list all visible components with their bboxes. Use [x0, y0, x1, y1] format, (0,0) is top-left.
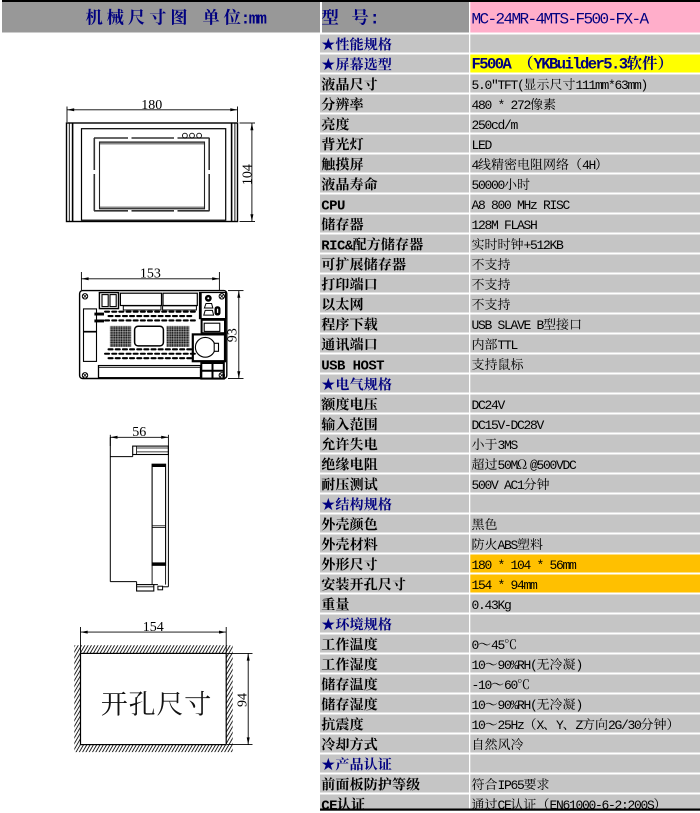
svg-text:TTL: TTL [498, 338, 518, 353]
svg-text:180: 180 [141, 98, 162, 113]
svg-text:10: 10 [472, 698, 486, 713]
svg-text:USB SLAVE B: USB SLAVE B [472, 318, 545, 333]
svg-text:0: 0 [472, 638, 479, 653]
svg-text:MC-24MR-4MTS-F500-FX-A: MC-24MR-4MTS-F500-FX-A [472, 10, 650, 28]
svg-text:2G/30: 2G/30 [608, 718, 641, 733]
svg-text:IP65: IP65 [498, 778, 525, 793]
svg-text:-10: -10 [472, 678, 492, 693]
svg-text:50M: 50M [498, 458, 518, 473]
svg-text:USB HOST: USB HOST [321, 358, 384, 374]
svg-text:50000: 50000 [472, 178, 505, 193]
svg-text:90%RH(: 90%RH( [498, 658, 537, 673]
svg-text:+512KB: +512KB [524, 238, 565, 253]
svg-text:): ) [576, 658, 583, 673]
svg-text::mm: :mm [241, 9, 268, 28]
svg-text:250cd/m: 250cd/m [472, 118, 519, 133]
svg-text:90%RH(: 90%RH( [498, 698, 537, 713]
svg-text:153: 153 [140, 267, 161, 282]
svg-text:480 * 272: 480 * 272 [472, 98, 531, 113]
svg-text:DC24V: DC24V [472, 398, 506, 413]
svg-text:): ) [576, 698, 583, 713]
svg-text:56: 56 [132, 425, 146, 440]
svg-text:DC15V-DC28V: DC15V-DC28V [472, 418, 545, 433]
svg-text:EN61000-6-2:200S: EN61000-6-2:200S [550, 798, 656, 813]
svg-text:94: 94 [235, 693, 250, 707]
svg-text:F500A: F500A [472, 56, 513, 74]
svg-text:45: 45 [491, 638, 505, 653]
svg-text:111mm*63mm): 111mm*63mm) [576, 78, 648, 93]
svg-text:104: 104 [240, 164, 255, 185]
svg-text:4H: 4H [582, 158, 596, 173]
svg-text:0.43Kg: 0.43Kg [472, 598, 512, 613]
svg-text:CPU: CPU [321, 198, 345, 214]
svg-text:93: 93 [225, 328, 240, 342]
svg-text:LED: LED [472, 138, 493, 153]
svg-text:5.0"TFT(: 5.0"TFT( [472, 78, 524, 93]
svg-text:180 * 104 * 56mm: 180 * 104 * 56mm [472, 558, 578, 573]
svg-text:10: 10 [472, 658, 486, 673]
svg-text:25Hz: 25Hz [498, 718, 525, 733]
svg-text:154: 154 [143, 620, 164, 635]
svg-text:@500VDC: @500VDC [530, 458, 577, 473]
svg-text:500V AC1: 500V AC1 [472, 478, 526, 493]
svg-text:CE: CE [321, 798, 337, 813]
svg-text:RIC&: RIC& [321, 238, 354, 254]
svg-text:154 * 94mm: 154 * 94mm [472, 578, 539, 593]
svg-text::: : [370, 10, 379, 29]
svg-text:A8 800 MHz RISC: A8 800 MHz RISC [472, 198, 571, 213]
svg-text:10: 10 [472, 718, 486, 733]
svg-text:60: 60 [504, 678, 518, 693]
svg-text:ABS: ABS [498, 538, 519, 553]
svg-text:3MS: 3MS [498, 438, 519, 453]
svg-text:YKBuilder5.3: YKBuilder5.3 [534, 56, 628, 74]
svg-text:CE: CE [498, 798, 513, 813]
svg-text:128M FLASH: 128M FLASH [472, 218, 538, 233]
